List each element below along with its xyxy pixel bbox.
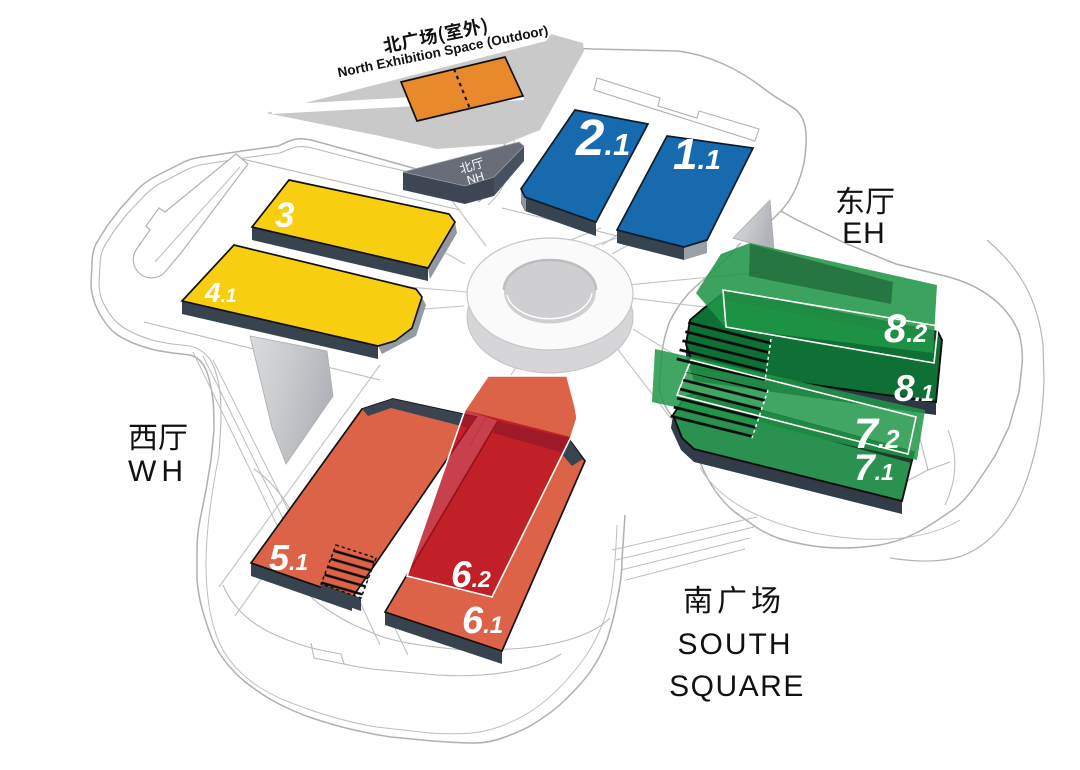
svg-text:SOUTH: SOUTH bbox=[678, 628, 793, 661]
svg-text:EH: EH bbox=[842, 217, 886, 250]
svg-text:3: 3 bbox=[275, 196, 295, 235]
svg-text:SQUARE: SQUARE bbox=[669, 670, 805, 703]
svg-text:WH: WH bbox=[128, 455, 188, 488]
